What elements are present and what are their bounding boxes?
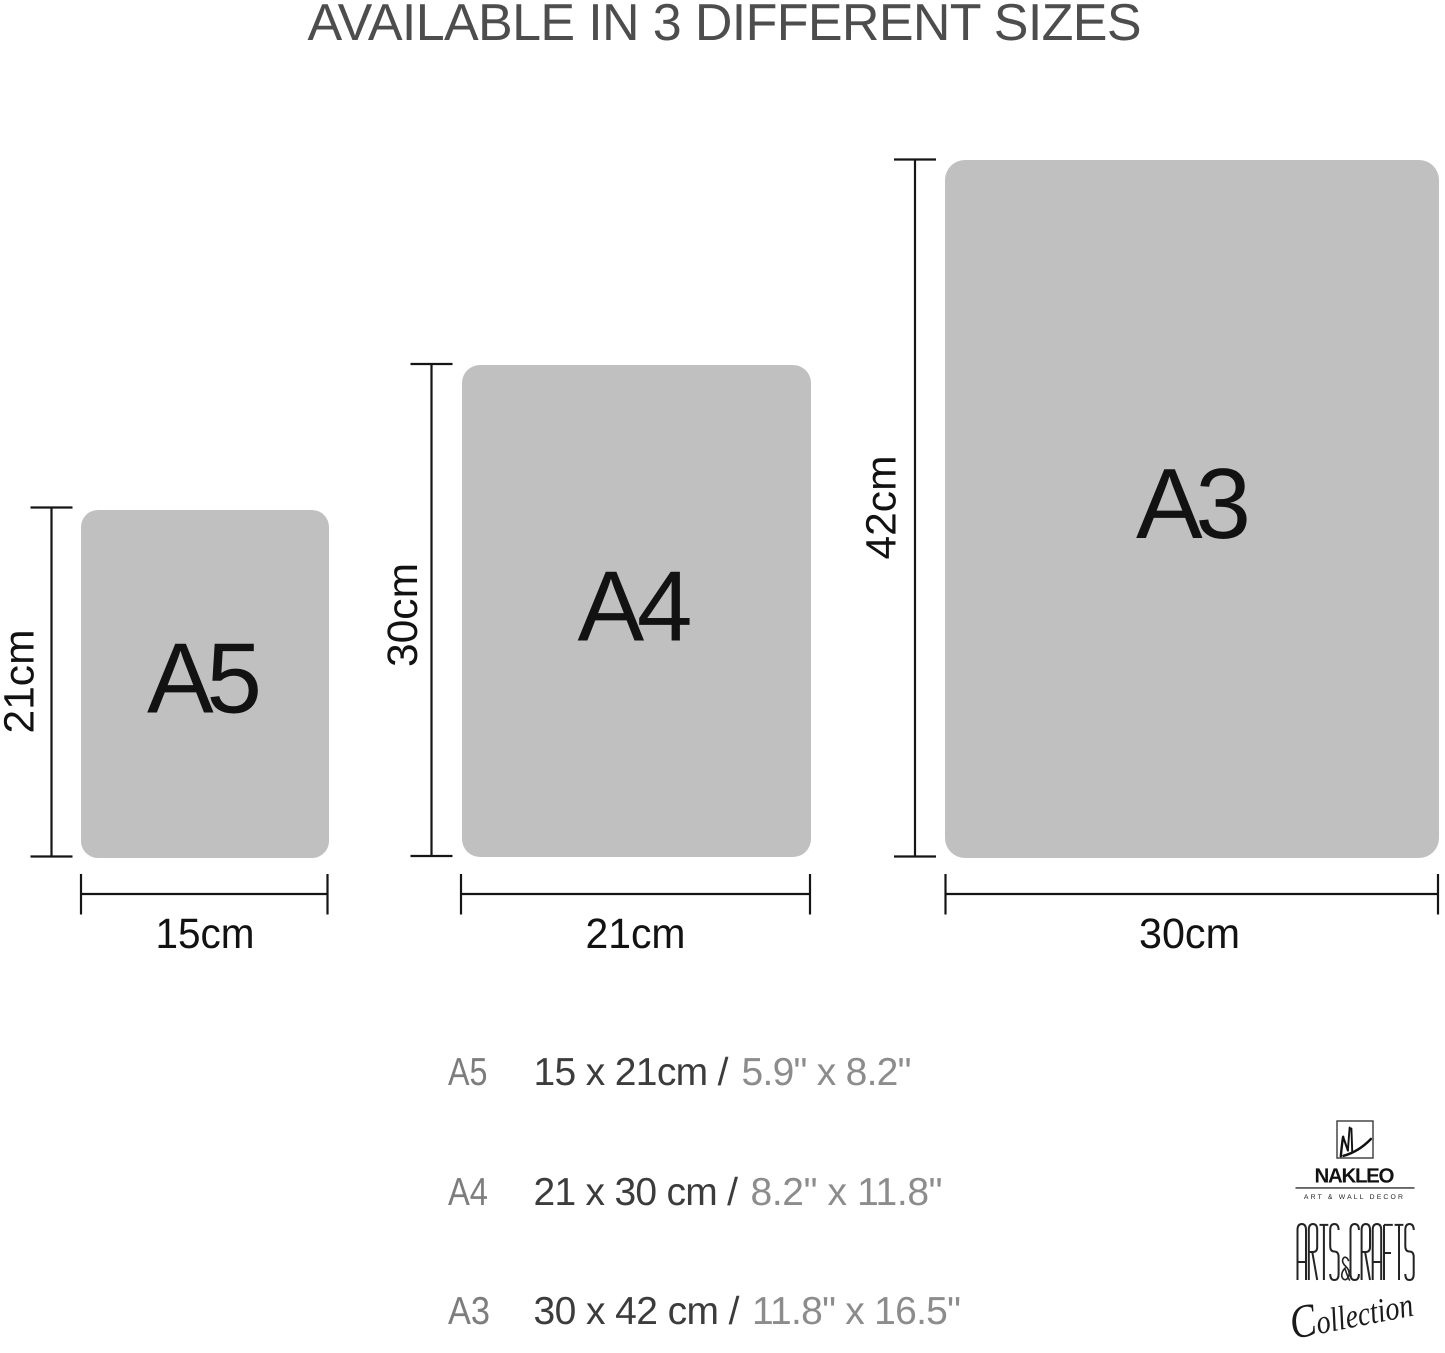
svg-text:AVAILABLE IN 3 DIFFERENT SIZES: AVAILABLE IN 3 DIFFERENT SIZES [308, 0, 1142, 52]
svg-text:30 x 42 cm /: 30 x 42 cm / [534, 1290, 740, 1333]
svg-text:ART & WALL DECOR: ART & WALL DECOR [1304, 1194, 1405, 1201]
svg-text:15 x 21cm /: 15 x 21cm / [534, 1051, 729, 1094]
svg-text:30cm: 30cm [380, 563, 427, 667]
svg-text:A5: A5 [147, 623, 262, 735]
svg-text:A5: A5 [448, 1051, 488, 1094]
svg-text:15cm: 15cm [156, 911, 255, 958]
svg-text:42cm: 42cm [859, 456, 906, 560]
svg-text:21cm: 21cm [586, 911, 686, 958]
svg-text:A4: A4 [448, 1171, 488, 1214]
svg-text:21cm: 21cm [0, 630, 44, 734]
svg-text:NAKLEO: NAKLEO [1315, 1165, 1395, 1188]
svg-text:21 x 30 cm /: 21 x 30 cm / [534, 1171, 739, 1214]
svg-text:A4: A4 [578, 551, 693, 663]
svg-text:30cm: 30cm [1139, 911, 1240, 958]
svg-text:5.9" x 8.2": 5.9" x 8.2" [742, 1051, 912, 1094]
svg-text:A3: A3 [1136, 448, 1251, 560]
svg-text:8.2" x 11.8": 8.2" x 11.8" [751, 1171, 943, 1214]
svg-text:A3: A3 [448, 1290, 490, 1333]
svg-text:11.8" x 16.5": 11.8" x 16.5" [752, 1290, 961, 1333]
